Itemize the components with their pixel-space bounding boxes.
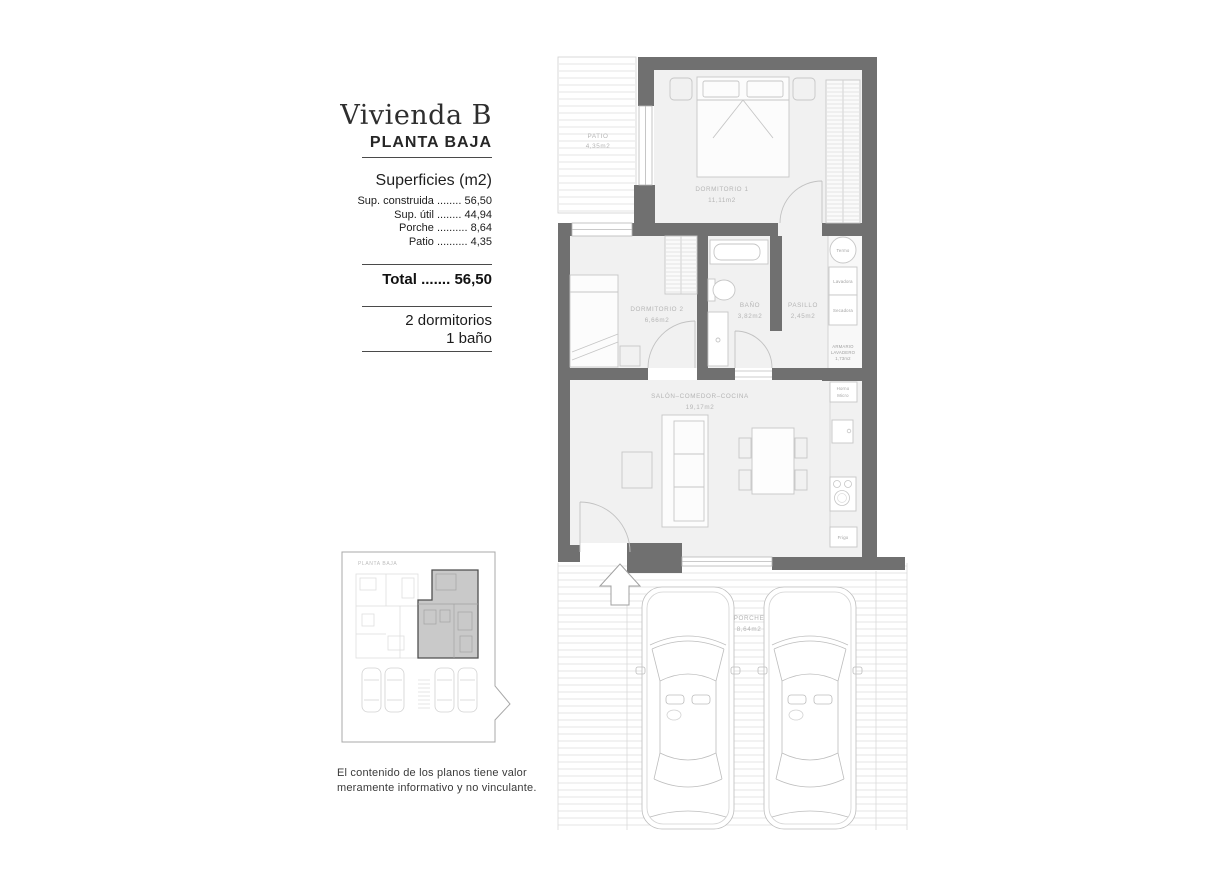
kitchen-sink-icon — [832, 420, 853, 443]
oven-label-1: Horno — [837, 386, 850, 391]
termo-label: Termo — [837, 248, 850, 253]
patio-slider-window — [639, 106, 652, 185]
salon-label: SALÓN–COMEDOR–COCINA — [651, 391, 749, 400]
surface-row-porche: Porche .......... 8,64 — [335, 222, 492, 236]
disclaimer-line1: El contenido de los planos tiene valor — [337, 766, 542, 781]
dormitorio2-label: DORMITORIO 2 — [630, 306, 683, 313]
dormitorio2-area-label: 6,66m2 — [645, 317, 670, 324]
salon-area-label: 19,17m2 — [686, 404, 715, 411]
surfaces-table: Sup. construida ........ 56,50 Sup. útil… — [335, 195, 492, 249]
divider — [362, 351, 492, 352]
sofa-icon — [662, 415, 708, 527]
bano-label: BAÑO — [740, 300, 760, 309]
page: Vivienda B PLANTA BAJA Superficies (m2) … — [0, 0, 1220, 870]
fridge-label: Frigo — [838, 535, 849, 540]
divider — [362, 306, 492, 307]
plan-title: Vivienda B — [335, 100, 492, 131]
surface-row-util: Sup. útil ........ 44,94 — [335, 209, 492, 223]
disclaimer-line2: meramente informativo y no vinculante. — [337, 781, 542, 796]
porche-area-label: 8,64m2 — [737, 626, 762, 633]
feature-bedrooms: 2 dormitorios — [335, 312, 492, 330]
armario-label-3: 1,73m2 — [835, 356, 851, 361]
pasillo-label: PASILLO — [788, 302, 818, 309]
armario-label-1: ARMARIO — [832, 344, 854, 349]
floorplan: PATIO 4,35m2 — [550, 50, 930, 840]
plan-subtitle: PLANTA BAJA — [335, 134, 492, 152]
feature-bathrooms: 1 baño — [335, 330, 492, 348]
dormitorio2-window — [572, 223, 632, 236]
dormitorio1-area-label: 11,11m2 — [708, 197, 736, 204]
patio-area-label: 4,35m2 — [586, 143, 611, 150]
salon-window — [682, 557, 772, 566]
divider — [362, 264, 492, 265]
secadora-label: Secadora — [833, 308, 853, 313]
surface-row-patio: Patio .......... 4,35 — [335, 236, 492, 250]
oven-label-2: Micro — [837, 393, 849, 398]
bathtub-icon — [710, 240, 768, 264]
dormitorio1-label: DORMITORIO 1 — [695, 186, 748, 193]
utility-column: Termo Lavadora Secadora ARMARIO LAVADERO… — [828, 236, 857, 368]
lavadora-label: Lavadora — [833, 279, 853, 284]
divider — [362, 157, 492, 158]
wardrobe-icon — [665, 236, 697, 294]
double-bed-icon — [697, 77, 789, 177]
disclaimer: El contenido de los planos tiene valor m… — [337, 766, 542, 796]
keyplan-label: PLANTA BAJA — [358, 561, 397, 567]
pasillo-area-label: 2,45m2 — [791, 313, 816, 320]
single-bed-icon — [570, 275, 618, 367]
wardrobe-icon — [826, 80, 860, 223]
surface-row-construida: Sup. construida ........ 56,50 — [335, 195, 492, 209]
sink-icon — [708, 312, 728, 366]
patio-label: PATIO — [588, 133, 609, 140]
toilet-icon — [708, 279, 735, 301]
bano-area-label: 3,82m2 — [738, 313, 763, 320]
oven-box — [830, 382, 857, 402]
total-row: Total ....... 56,50 — [335, 271, 492, 288]
car-icon — [758, 587, 862, 829]
porche-label: PORCHE — [734, 615, 765, 622]
car-icon — [636, 587, 740, 829]
patio-area: PATIO 4,35m2 — [558, 57, 636, 213]
hob-icon — [830, 477, 856, 511]
features: 2 dormitorios 1 baño — [335, 312, 492, 348]
armario-label-2: LAVADERO — [831, 350, 856, 355]
surfaces-heading: Superficies (m2) — [335, 172, 492, 190]
keyplan-bubble: PLANTA BAJA — [340, 548, 515, 748]
